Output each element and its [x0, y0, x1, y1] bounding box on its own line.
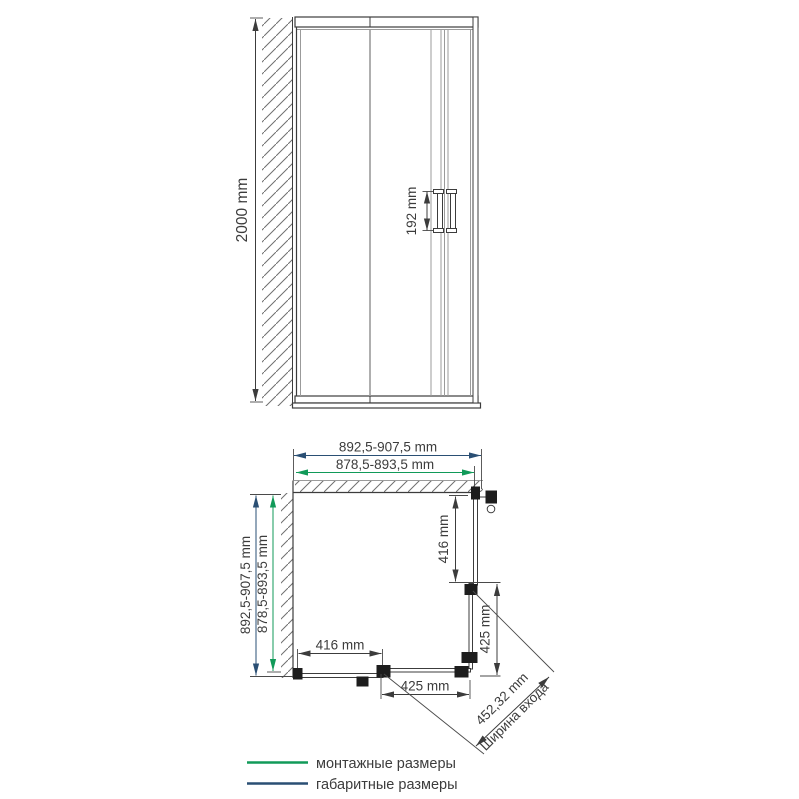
top-overall-dimension-label: 892,5-907,5 mm: [339, 440, 437, 455]
bottom-fixed-panel-dimension-label: 416 mm: [316, 638, 365, 653]
height-dimension: 2000 mm: [234, 18, 263, 402]
roller-bracket: [455, 666, 469, 678]
right-door-dimension-label: 425 mm: [478, 605, 493, 654]
left-wall-hatch-strip: [281, 493, 293, 678]
top-wall-hatch-strip: [295, 481, 483, 493]
bottom-fixed-panel: [295, 674, 383, 678]
left-mounting-dimension-label: 878,5-893,5 mm: [255, 535, 270, 633]
legend-overall-label: габаритные размеры: [316, 777, 458, 793]
shower-enclosure-technical-drawing: 192 mm 2000 mm 892,5-907,5 mm 878,5-89: [0, 0, 799, 799]
roller-bracket: [357, 677, 369, 687]
left-overall-dimension-label: 892,5-907,5 mm: [238, 536, 253, 634]
right-fixed-panel-dimension-label: 416 mm: [436, 515, 451, 564]
door-handle: [434, 190, 444, 233]
handle-dimension: 192 mm: [404, 187, 434, 236]
legend: монтажные размеры габаритные размеры: [247, 756, 458, 793]
wall-profile-cap: [293, 668, 303, 680]
wall-profile-cap: [471, 487, 480, 500]
bottom-door-dimension-label: 425 mm: [401, 679, 450, 694]
top-mounting-dimension-label: 878,5-893,5 mm: [336, 457, 434, 472]
roller-bracket: [377, 665, 391, 678]
bottom-door-dimension: 425 mm: [381, 674, 470, 699]
handle-dimension-label: 192 mm: [404, 187, 419, 236]
bottom-fixed-panel-dimension: 416 mm: [298, 638, 383, 669]
right-door-dimension: 425 mm: [478, 584, 501, 676]
plan-view: 892,5-907,5 mm 878,5-893,5 mm 892,5-907,…: [238, 440, 554, 755]
legend-mounting-label: монтажные размеры: [316, 756, 456, 772]
left-mounting-dimension: 878,5-893,5 mm: [255, 496, 281, 673]
front-elevation-view: 192 mm 2000 mm: [234, 17, 481, 408]
right-fixed-panel: [474, 493, 478, 585]
drawing-page: 192 mm 2000 mm 892,5-907,5 mm 878,5-89: [0, 0, 799, 799]
wall-bracket-detail: [480, 491, 497, 513]
wall-hatch-strip: [262, 18, 292, 406]
height-dimension-label: 2000 mm: [234, 178, 251, 243]
roller-bracket: [462, 652, 478, 663]
